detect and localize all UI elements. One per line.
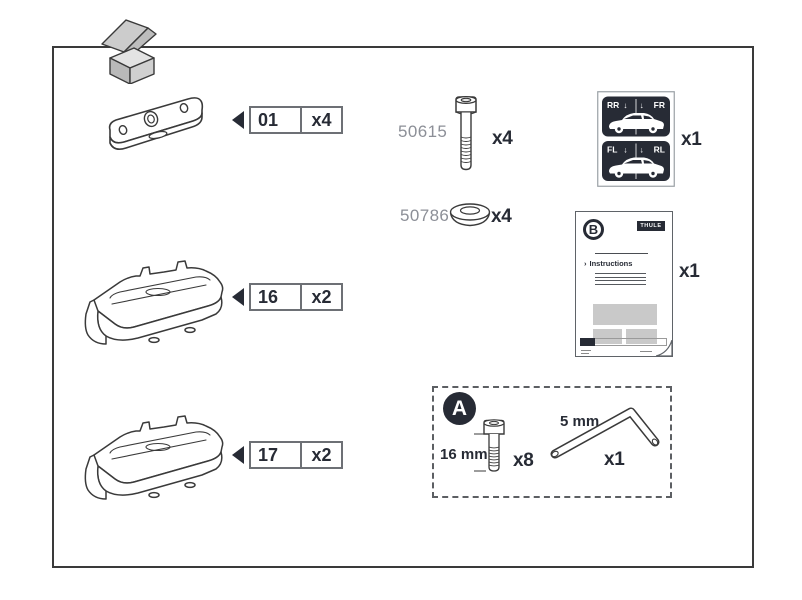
washer-illustration (447, 199, 493, 231)
sticker-fl-rl: FL RL ↓ ↓ (602, 141, 670, 181)
foot-pad-illustration-16 (78, 252, 234, 350)
part-qty: x2 (302, 285, 341, 309)
step-b-badge: B (583, 219, 604, 240)
part-number-50786: 50786 (400, 206, 449, 226)
booklet-title-row: › Instructions (584, 259, 632, 268)
kit-bolt-illustration (460, 417, 510, 475)
fineprint-line (581, 353, 589, 354)
allen-key-qty: x1 (604, 449, 625, 471)
thule-logo: THULE (637, 221, 665, 231)
part-id: 17 (251, 443, 302, 467)
chevron-right-icon: › (584, 259, 587, 268)
sticker-rr-fr: RR FR ↓ ↓ (602, 97, 670, 137)
sticker-label-rr: RR (607, 100, 619, 110)
part-id: 16 (251, 285, 302, 309)
part-label-box: 01 x4 (249, 106, 343, 134)
text-line (595, 280, 646, 281)
screw-qty: x4 (492, 128, 513, 150)
part-qty: x2 (302, 443, 341, 467)
foot-pad-illustration-17 (78, 407, 234, 505)
part-label-box: 17 x2 (249, 441, 343, 469)
kit-bolt-qty: x8 (513, 450, 534, 472)
text-line (595, 277, 646, 278)
sticker-label-fr: FR (654, 100, 665, 110)
bracket-part-illustration (96, 86, 220, 170)
part-label-16: 16 x2 (232, 283, 343, 311)
booklet-image-block (593, 304, 657, 325)
booklet-title: Instructions (590, 259, 633, 268)
part-label-01: 01 x4 (232, 106, 343, 134)
booklet-footer-mark (580, 338, 595, 346)
part-label-17: 17 x2 (232, 441, 343, 469)
fineprint-line (581, 350, 591, 351)
divider (595, 253, 648, 254)
sticker-qty: x1 (681, 129, 702, 151)
open-box-icon (90, 14, 168, 84)
pointer-arrow-icon (232, 288, 244, 306)
part-id: 01 (251, 108, 302, 132)
part-qty: x4 (302, 108, 341, 132)
down-arrows-icon: ↓ ↓ (623, 101, 648, 110)
fineprint-line (640, 351, 652, 352)
booklet-qty: x1 (679, 261, 700, 283)
text-line (595, 284, 646, 285)
page-curl-icon (656, 340, 673, 357)
kit-contents-sheet: 01 x4 16 x2 (0, 0, 802, 600)
screw-illustration (449, 93, 483, 177)
washer-qty: x4 (491, 206, 512, 228)
down-arrows-icon: ↓ ↓ (623, 146, 648, 155)
part-number-50615: 50615 (398, 122, 447, 142)
sticker-label-fl: FL (607, 145, 617, 155)
pointer-arrow-icon (232, 111, 244, 129)
sticker-label-rl: RL (654, 145, 665, 155)
pointer-arrow-icon (232, 446, 244, 464)
position-sticker-sheet: RR FR ↓ ↓ FL RL ↓ ↓ (597, 91, 675, 187)
part-label-box: 16 x2 (249, 283, 343, 311)
instructions-booklet: B THULE › Instructions (575, 211, 673, 357)
text-line (595, 273, 646, 274)
